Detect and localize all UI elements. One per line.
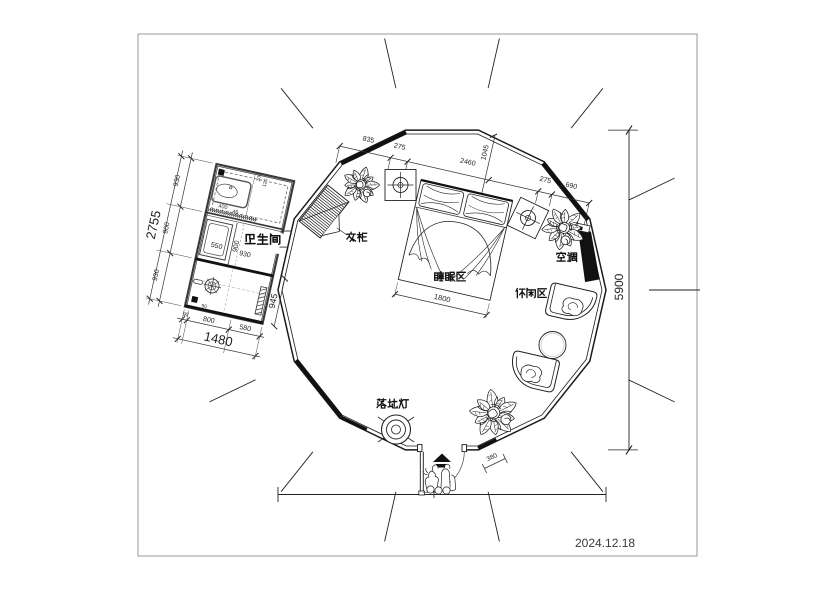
svg-text:900: 900 xyxy=(162,222,171,235)
svg-text:835: 835 xyxy=(362,135,375,144)
svg-text:90: 90 xyxy=(182,311,189,318)
svg-text:930: 930 xyxy=(173,174,182,187)
svg-text:380: 380 xyxy=(486,452,499,463)
svg-text:5900: 5900 xyxy=(612,273,626,300)
svg-text:2024.12.18: 2024.12.18 xyxy=(575,536,635,550)
svg-text:1480: 1480 xyxy=(203,329,234,350)
svg-text:930: 930 xyxy=(152,269,161,282)
svg-text:945: 945 xyxy=(267,293,280,310)
svg-text:2755: 2755 xyxy=(143,209,164,240)
